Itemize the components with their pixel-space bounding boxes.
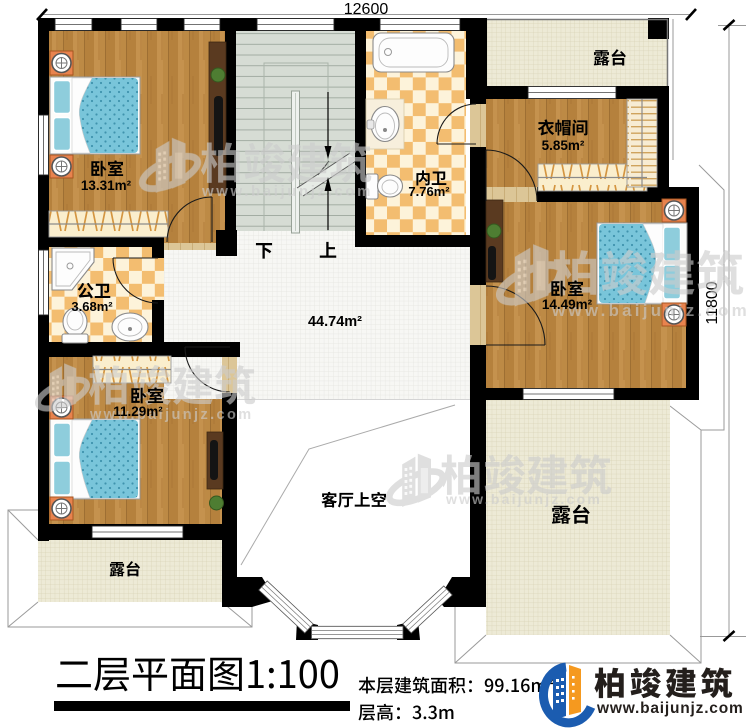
- svg-text:www.baijunjz.com: www.baijunjz.com: [445, 491, 602, 507]
- svg-text:www.baijunjz.com: www.baijunjz.com: [201, 183, 373, 200]
- svg-text:7.76m²: 7.76m²: [408, 184, 450, 199]
- svg-text:13.31m²: 13.31m²: [81, 178, 132, 193]
- svg-text:12600: 12600: [344, 1, 389, 18]
- svg-text:14.49m²: 14.49m²: [542, 297, 593, 312]
- svg-text:3.68m²: 3.68m²: [71, 299, 113, 314]
- svg-text:www.baijunjz.com: www.baijunjz.com: [596, 700, 744, 717]
- svg-text:11.29m²: 11.29m²: [113, 404, 163, 419]
- svg-text:5.85m²: 5.85m²: [542, 138, 585, 153]
- svg-text:44.74m²: 44.74m²: [308, 314, 362, 330]
